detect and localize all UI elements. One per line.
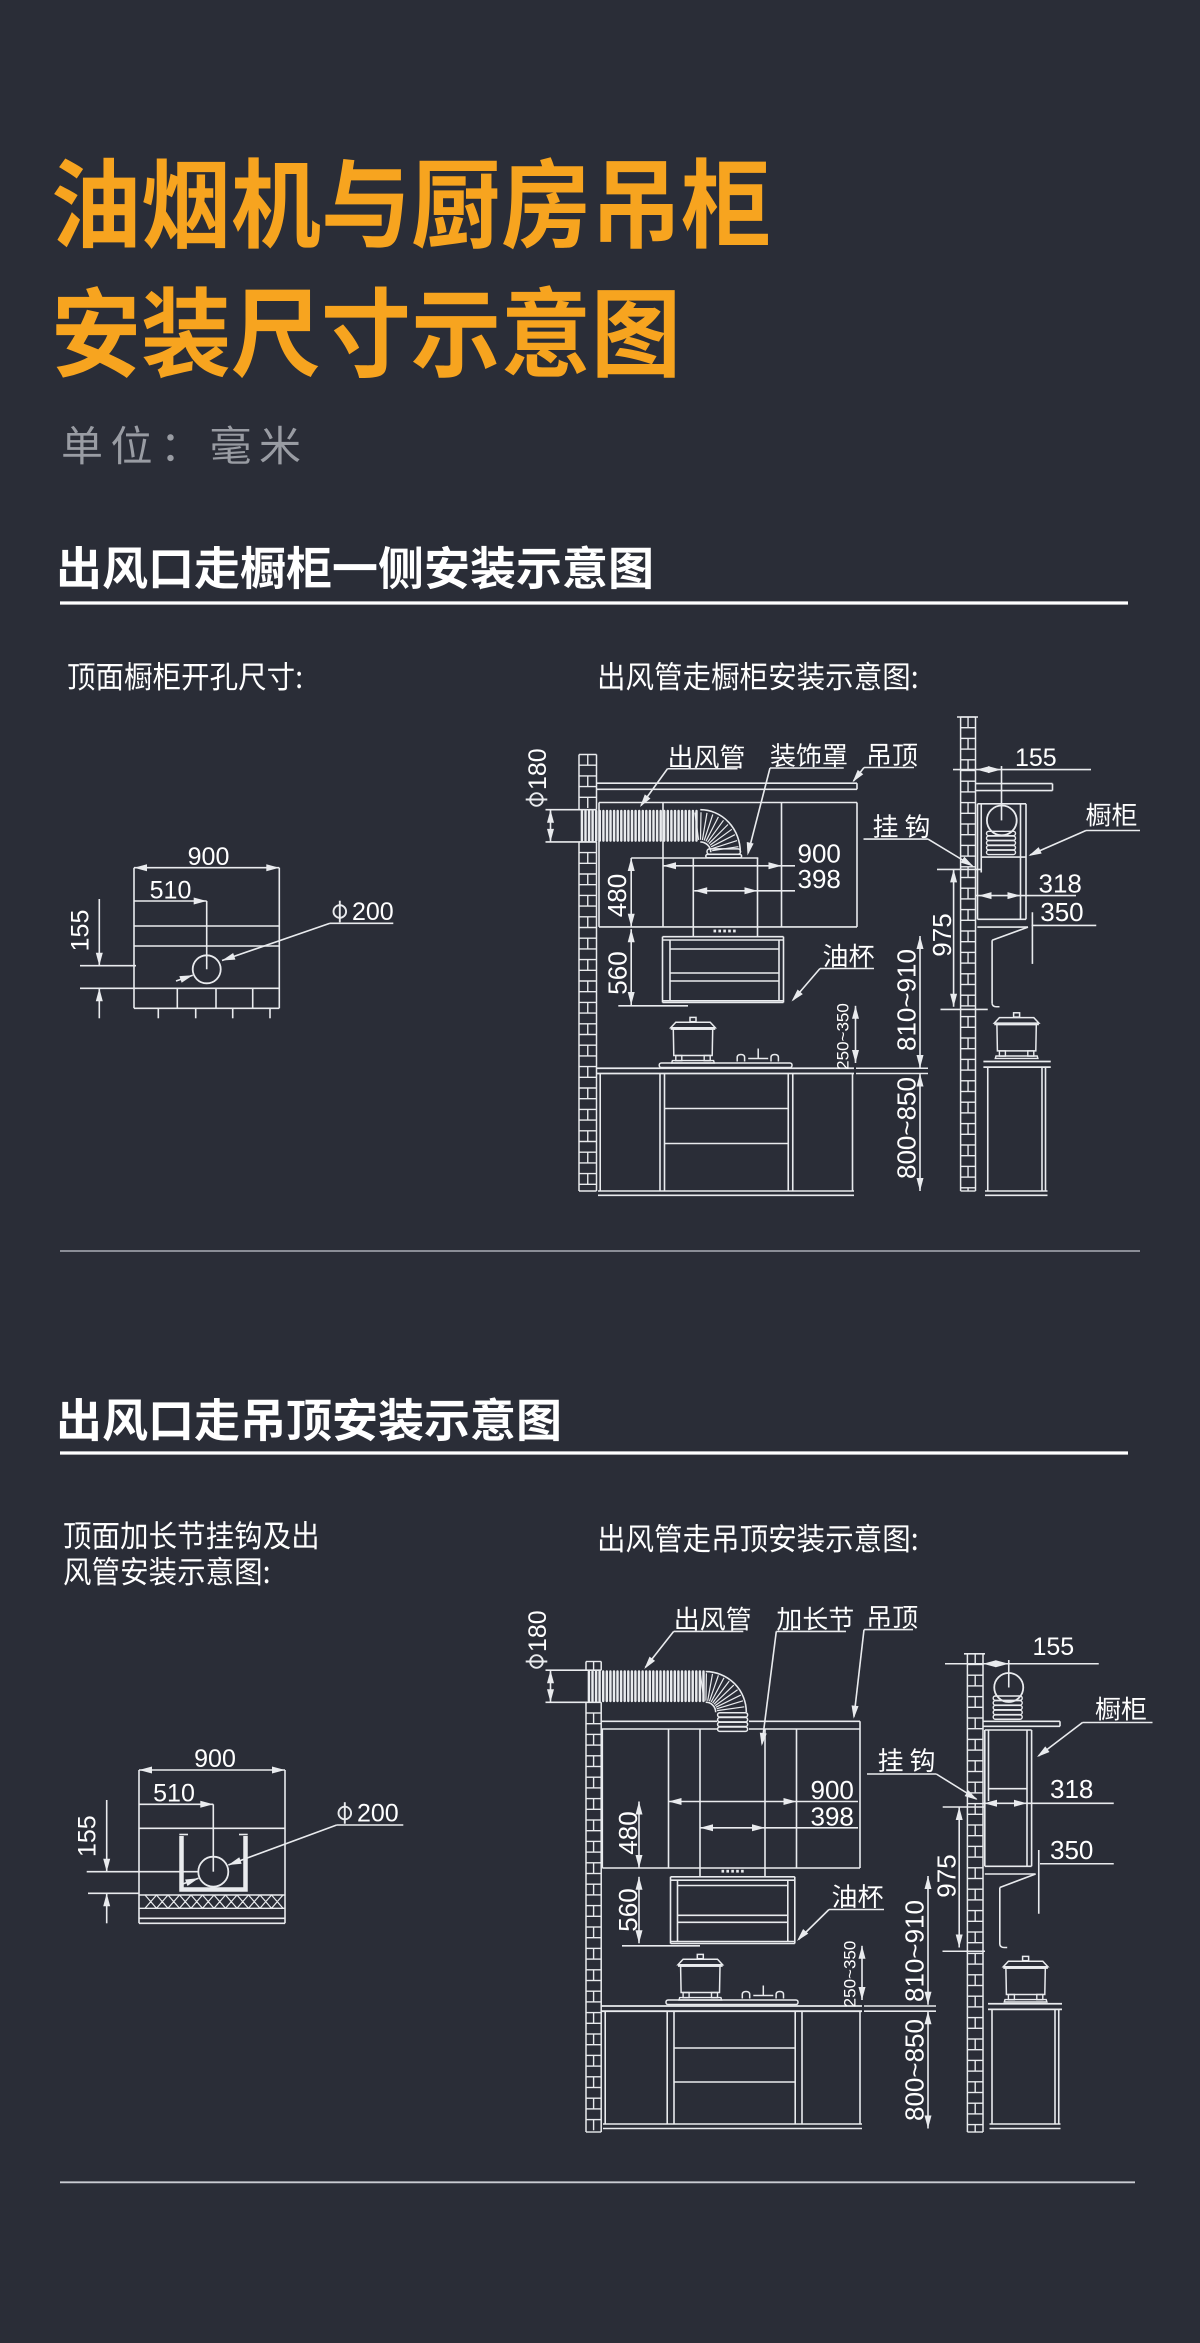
svg-text:350: 350: [1050, 1835, 1093, 1865]
svg-text:810~910: 810~910: [900, 1900, 930, 2002]
svg-text:200: 200: [357, 1800, 399, 1828]
svg-text:510: 510: [153, 1780, 195, 1808]
svg-text:480: 480: [602, 874, 632, 917]
svg-text:155: 155: [1015, 744, 1057, 772]
svg-text:900: 900: [194, 1745, 236, 1773]
svg-text:155: 155: [1033, 1633, 1075, 1661]
svg-text:900: 900: [811, 1775, 854, 1805]
svg-text:350: 350: [1040, 897, 1083, 927]
svg-text:398: 398: [811, 1802, 854, 1832]
svg-text:510: 510: [150, 877, 192, 905]
svg-text:800~850: 800~850: [900, 2019, 930, 2121]
svg-text:250~350: 250~350: [841, 1941, 860, 2008]
svg-text:800~850: 800~850: [892, 1077, 922, 1179]
svg-text:155: 155: [74, 1815, 102, 1857]
svg-text:975: 975: [932, 1854, 962, 1897]
svg-text:155: 155: [67, 910, 95, 952]
svg-text:480: 480: [613, 1811, 643, 1854]
svg-text:200: 200: [352, 898, 394, 926]
svg-text:900: 900: [188, 843, 230, 871]
svg-text:250~350: 250~350: [834, 1003, 853, 1070]
svg-text:560: 560: [613, 1888, 643, 1931]
svg-text:810~910: 810~910: [892, 949, 922, 1051]
svg-text:318: 318: [1050, 1774, 1093, 1804]
svg-text:398: 398: [798, 864, 841, 894]
svg-text:180: 180: [524, 1610, 552, 1652]
svg-text:975: 975: [927, 913, 957, 956]
svg-text:318: 318: [1039, 869, 1082, 899]
svg-text:180: 180: [524, 748, 552, 790]
svg-text:560: 560: [603, 951, 633, 994]
